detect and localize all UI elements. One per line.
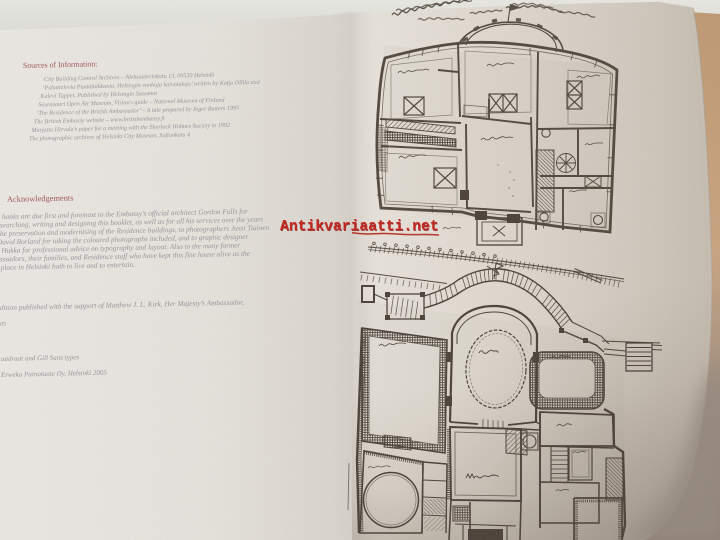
svg-text:Antikvariaatti.net: Antikvariaatti.net <box>280 219 439 235</box>
